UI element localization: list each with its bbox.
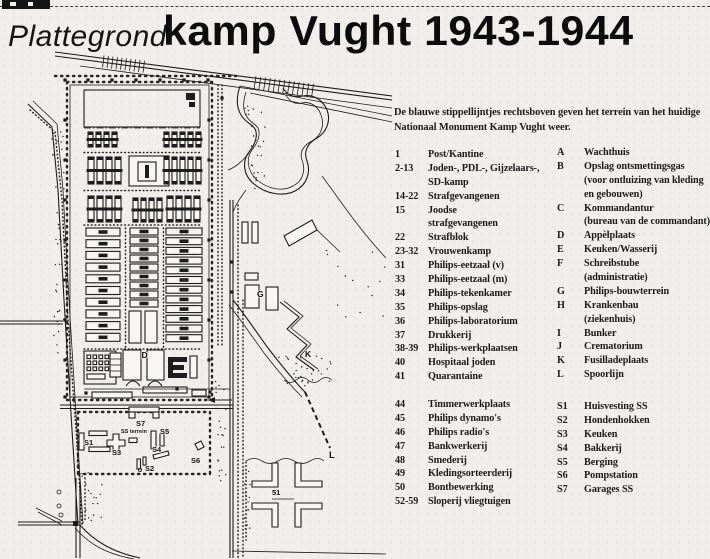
legend-label: Smederij bbox=[428, 455, 558, 469]
scanned-map-page: Plattegrond kamp Vught 1943-1944 bbox=[0, 0, 710, 559]
legend-row: 40Hospitaal joden bbox=[395, 357, 558, 371]
legend-label: en gebouwen) bbox=[584, 189, 709, 203]
legend-key: 46 bbox=[395, 427, 428, 441]
legend-label: Philips-eetzaal (m) bbox=[428, 274, 558, 288]
legend-label: Philips-laboratorium bbox=[428, 316, 558, 330]
legend-row: 37Drukkerij bbox=[395, 330, 558, 344]
legend-key: 1 bbox=[395, 149, 428, 163]
legend-label: Spoorlijn bbox=[584, 369, 709, 383]
scan-artifact bbox=[2, 0, 50, 9]
legend-label: Keuken bbox=[584, 429, 709, 443]
legend-row: FSchreibstube bbox=[557, 258, 709, 272]
legend-label: Joodse bbox=[428, 205, 558, 219]
scrapyard-crosses bbox=[246, 459, 324, 541]
legend-key: 41 bbox=[395, 371, 428, 385]
legend-key bbox=[395, 177, 428, 191]
svg-text:S4: S4 bbox=[152, 445, 162, 454]
legend-label: Post/Kantine bbox=[428, 149, 558, 163]
southwest-roads bbox=[18, 478, 140, 559]
legend-key bbox=[557, 314, 584, 328]
legend-label: Philips dynamo's bbox=[428, 413, 558, 427]
legend-row: S7Garages SS bbox=[557, 484, 709, 498]
legend-key: B bbox=[557, 161, 584, 175]
legend-label: Garages SS bbox=[584, 484, 709, 498]
railway-north bbox=[55, 52, 392, 122]
roll-call-field bbox=[84, 90, 200, 128]
legend-row: S2Hondenhokken bbox=[557, 415, 709, 429]
svg-text:L: L bbox=[329, 450, 335, 461]
legend-letters-2: S1Huisvesting SSS2HondenhokkenS3KeukenS4… bbox=[557, 401, 709, 498]
legend-key: S7 bbox=[557, 484, 584, 498]
legend-key: E bbox=[557, 244, 584, 258]
legend-label: Bankwerkerij bbox=[428, 441, 558, 455]
legend-row: strafgevangenen bbox=[395, 218, 558, 232]
legend-key: 48 bbox=[395, 455, 428, 469]
legend-row: 41Quarantaine bbox=[395, 371, 558, 385]
legend-key: 38-39 bbox=[395, 343, 428, 357]
legend-key bbox=[557, 175, 584, 189]
legend-key: 23-32 bbox=[395, 246, 428, 260]
legend-row: BOpslag ontsmettingsgas bbox=[557, 161, 709, 175]
kitchen-e-building bbox=[168, 356, 197, 378]
legend-label: Pompstation bbox=[584, 470, 709, 484]
legend-intro: De blauwe stippellijntjes rechtsboven ge… bbox=[394, 106, 710, 135]
legend-label: Opslag ontsmettingsgas bbox=[584, 161, 709, 175]
legend-label: (bureau van de commandant) bbox=[584, 216, 710, 230]
legend-intro-line1: De blauwe stippellijntjes rechtsboven ge… bbox=[394, 107, 700, 118]
legend-key: 37 bbox=[395, 330, 428, 344]
legend-key: S2 bbox=[557, 415, 584, 429]
legend-key: 31 bbox=[395, 260, 428, 274]
svg-text:SS terrein: SS terrein bbox=[121, 429, 148, 435]
legend-key: S1 bbox=[557, 401, 584, 415]
legend-label: Fusilladeplaats bbox=[584, 355, 709, 369]
legend-row: KFusilladeplaats bbox=[557, 355, 709, 369]
legend-key: 50 bbox=[395, 482, 428, 496]
legend-row: 2-13Joden-, PDL-, Gijzelaars-, bbox=[395, 163, 558, 177]
legend-label: Sloperij vliegtuigen bbox=[428, 496, 558, 510]
legend-label: Berging bbox=[584, 457, 709, 471]
legend-key: S5 bbox=[557, 457, 584, 471]
svg-text:D: D bbox=[142, 350, 148, 360]
legend-key: J bbox=[557, 341, 584, 355]
legend-row: LSpoorlijn bbox=[557, 369, 709, 383]
legend-key bbox=[557, 216, 584, 230]
legend-label: strafgevangenen bbox=[428, 218, 558, 232]
legend-label: Philips-opslag bbox=[428, 302, 558, 316]
legend-row: EKeuken/Wasserij bbox=[557, 244, 709, 258]
legend-key: 49 bbox=[395, 468, 428, 482]
svg-text:51: 51 bbox=[272, 488, 280, 497]
legend-label: Joden-, PDL-, Gijzelaars-, bbox=[428, 163, 558, 177]
legend-row: JCrematorium bbox=[557, 341, 709, 355]
legend-row: (bureau van de commandant) bbox=[557, 216, 709, 230]
legend-row: S4Bakkerij bbox=[557, 443, 709, 457]
legend-key bbox=[557, 189, 584, 203]
legend-label: (administratie) bbox=[584, 272, 709, 286]
west-road bbox=[0, 101, 83, 525]
legend-label: Crematorium bbox=[584, 341, 709, 355]
legend-label: Quarantaine bbox=[428, 371, 558, 385]
legend-key: C bbox=[557, 203, 584, 217]
legend-row: 14-22Strafgevangenen bbox=[395, 191, 558, 205]
legend-label: (voor ontluizing van kleding bbox=[584, 175, 709, 189]
legend-key: 2-13 bbox=[395, 163, 428, 177]
woods-fusillade bbox=[280, 301, 332, 383]
legend-row: (voor ontluizing van kleding bbox=[557, 175, 709, 189]
legend-label: Krankenbau bbox=[584, 300, 709, 314]
svg-text:S5: S5 bbox=[160, 427, 169, 436]
legend-row: CKommandantur bbox=[557, 203, 709, 217]
legend-key: 45 bbox=[395, 413, 428, 427]
legend-key: 14-22 bbox=[395, 191, 428, 205]
legend-label: Schreibstube bbox=[584, 258, 709, 272]
svg-text:S1: S1 bbox=[84, 438, 93, 447]
legend-label: Philips-bouwterrein bbox=[584, 286, 709, 300]
legend-row: 33Philips-eetzaal (m) bbox=[395, 274, 558, 288]
legend-key: D bbox=[557, 230, 584, 244]
legend-row: 46Philips radio's bbox=[395, 427, 558, 441]
legend-row: (ziekenhuis) bbox=[557, 314, 709, 328]
legend-row: S1Huisvesting SS bbox=[557, 401, 709, 415]
legend-label: Bontbewerking bbox=[428, 482, 558, 496]
svg-text:G: G bbox=[257, 289, 264, 299]
legend-key: 33 bbox=[395, 274, 428, 288]
legend-label: Philips-werkplaatsen bbox=[428, 343, 558, 357]
legend-key: K bbox=[557, 355, 584, 369]
legend-row: 47Bankwerkerij bbox=[395, 441, 558, 455]
legend-row: DAppèlplaats bbox=[557, 230, 709, 244]
legend-row: 35Philips-opslag bbox=[395, 302, 558, 316]
railway-spur bbox=[229, 300, 330, 448]
legend-label: Keuken/Wasserij bbox=[584, 244, 709, 258]
legend-label: Huisvesting SS bbox=[584, 401, 709, 415]
legend-key: 34 bbox=[395, 288, 428, 302]
legend-row: S5Berging bbox=[557, 457, 709, 471]
legend-key: I bbox=[557, 328, 584, 342]
legend-label: Kommandantur bbox=[584, 203, 709, 217]
legend-key: 22 bbox=[395, 232, 428, 246]
legend-label: Strafblok bbox=[428, 232, 558, 246]
legend-row: 48Smederij bbox=[395, 455, 558, 469]
legend-key: 40 bbox=[395, 357, 428, 371]
legend-key: S3 bbox=[557, 429, 584, 443]
legend-key bbox=[395, 218, 428, 232]
legend-row: 45Philips dynamo's bbox=[395, 413, 558, 427]
legend-row: SD-kamp bbox=[395, 177, 558, 191]
legend-label: Hospitaal joden bbox=[428, 357, 558, 371]
legend-row: 1Post/Kantine bbox=[395, 149, 558, 163]
legend-key: G bbox=[557, 286, 584, 300]
legend-label: Appèlplaats bbox=[584, 230, 709, 244]
legend-row: 49Kledingsorteerderij bbox=[395, 468, 558, 482]
legend-row: 31Philips-eetzaal (v) bbox=[395, 260, 558, 274]
legend-row: 23-32Vrouwenkamp bbox=[395, 246, 558, 260]
legend-key: H bbox=[557, 300, 584, 314]
legend-key: 36 bbox=[395, 316, 428, 330]
legend-label: Hondenhokken bbox=[584, 415, 709, 429]
legend-intro-line2: Nationaal Monument Kamp Vught weer. bbox=[394, 122, 571, 133]
legend-label: Timmerwerkplaats bbox=[428, 399, 558, 413]
legend-row: AWachthuis bbox=[557, 147, 709, 161]
svg-text:S3: S3 bbox=[112, 448, 121, 457]
legend-key: L bbox=[557, 369, 584, 383]
legend-key: 15 bbox=[395, 205, 428, 219]
legend-row: S3Keuken bbox=[557, 429, 709, 443]
legend-row: 34Philips-tekenkamer bbox=[395, 288, 558, 302]
legend-label: Bunker bbox=[584, 328, 709, 342]
legend-label: Strafgevangenen bbox=[428, 191, 558, 205]
legend-row: 15Joodse bbox=[395, 205, 558, 219]
legend-row: IBunker bbox=[557, 328, 709, 342]
legend-letters: AWachthuisBOpslag ontsmettingsgas(voor o… bbox=[557, 147, 709, 383]
legend-numbers-2: 44Timmerwerkplaats45Philips dynamo's46Ph… bbox=[395, 399, 558, 510]
legend-row: 36Philips-laboratorium bbox=[395, 316, 558, 330]
legend-label: SD-kamp bbox=[428, 177, 558, 191]
legend-key: S6 bbox=[557, 470, 584, 484]
legend-label: Philips radio's bbox=[428, 427, 558, 441]
legend-label: Wachthuis bbox=[584, 147, 709, 161]
svg-text:S7: S7 bbox=[136, 419, 145, 428]
camp-map: DGKLS1S3S7SS terreinS5S4S6S251 bbox=[0, 40, 395, 559]
legend-label: Bakkerij bbox=[584, 443, 709, 457]
legend-row: 22Strafblok bbox=[395, 232, 558, 246]
legend-row: S6Pompstation bbox=[557, 470, 709, 484]
svg-text:K: K bbox=[305, 349, 312, 359]
legend-key: A bbox=[557, 147, 584, 161]
legend-key: S4 bbox=[557, 443, 584, 457]
legend-key bbox=[557, 272, 584, 286]
svg-text:S2: S2 bbox=[145, 464, 154, 473]
legend-label: Kledingsorteerderij bbox=[428, 468, 558, 482]
legend-row: (administratie) bbox=[557, 272, 709, 286]
legend-key: 52-59 bbox=[395, 496, 428, 510]
legend-key: 44 bbox=[395, 399, 428, 413]
legend-label: Philips-eetzaal (v) bbox=[428, 260, 558, 274]
svg-text:S6: S6 bbox=[191, 456, 200, 465]
legend-label: (ziekenhuis) bbox=[584, 314, 709, 328]
legend-row: 44Timmerwerkplaats bbox=[395, 399, 558, 413]
legend-row: 50Bontbewerking bbox=[395, 482, 558, 496]
legend-key: F bbox=[557, 258, 584, 272]
legend-numbers: 1Post/Kantine2-13Joden-, PDL-, Gijzelaar… bbox=[395, 149, 558, 385]
legend-row: 52-59Sloperij vliegtuigen bbox=[395, 496, 558, 510]
legend-key: 47 bbox=[395, 441, 428, 455]
legend-row: 38-39Philips-werkplaatsen bbox=[395, 343, 558, 357]
legend-label: Vrouwenkamp bbox=[428, 246, 558, 260]
legend-row: en gebouwen) bbox=[557, 189, 709, 203]
legend-label: Drukkerij bbox=[428, 330, 558, 344]
legend-label: Philips-tekenkamer bbox=[428, 288, 558, 302]
legend-key: 35 bbox=[395, 302, 428, 316]
legend-row: HKrankenbau bbox=[557, 300, 709, 314]
legend-row: GPhilips-bouwterrein bbox=[557, 286, 709, 300]
